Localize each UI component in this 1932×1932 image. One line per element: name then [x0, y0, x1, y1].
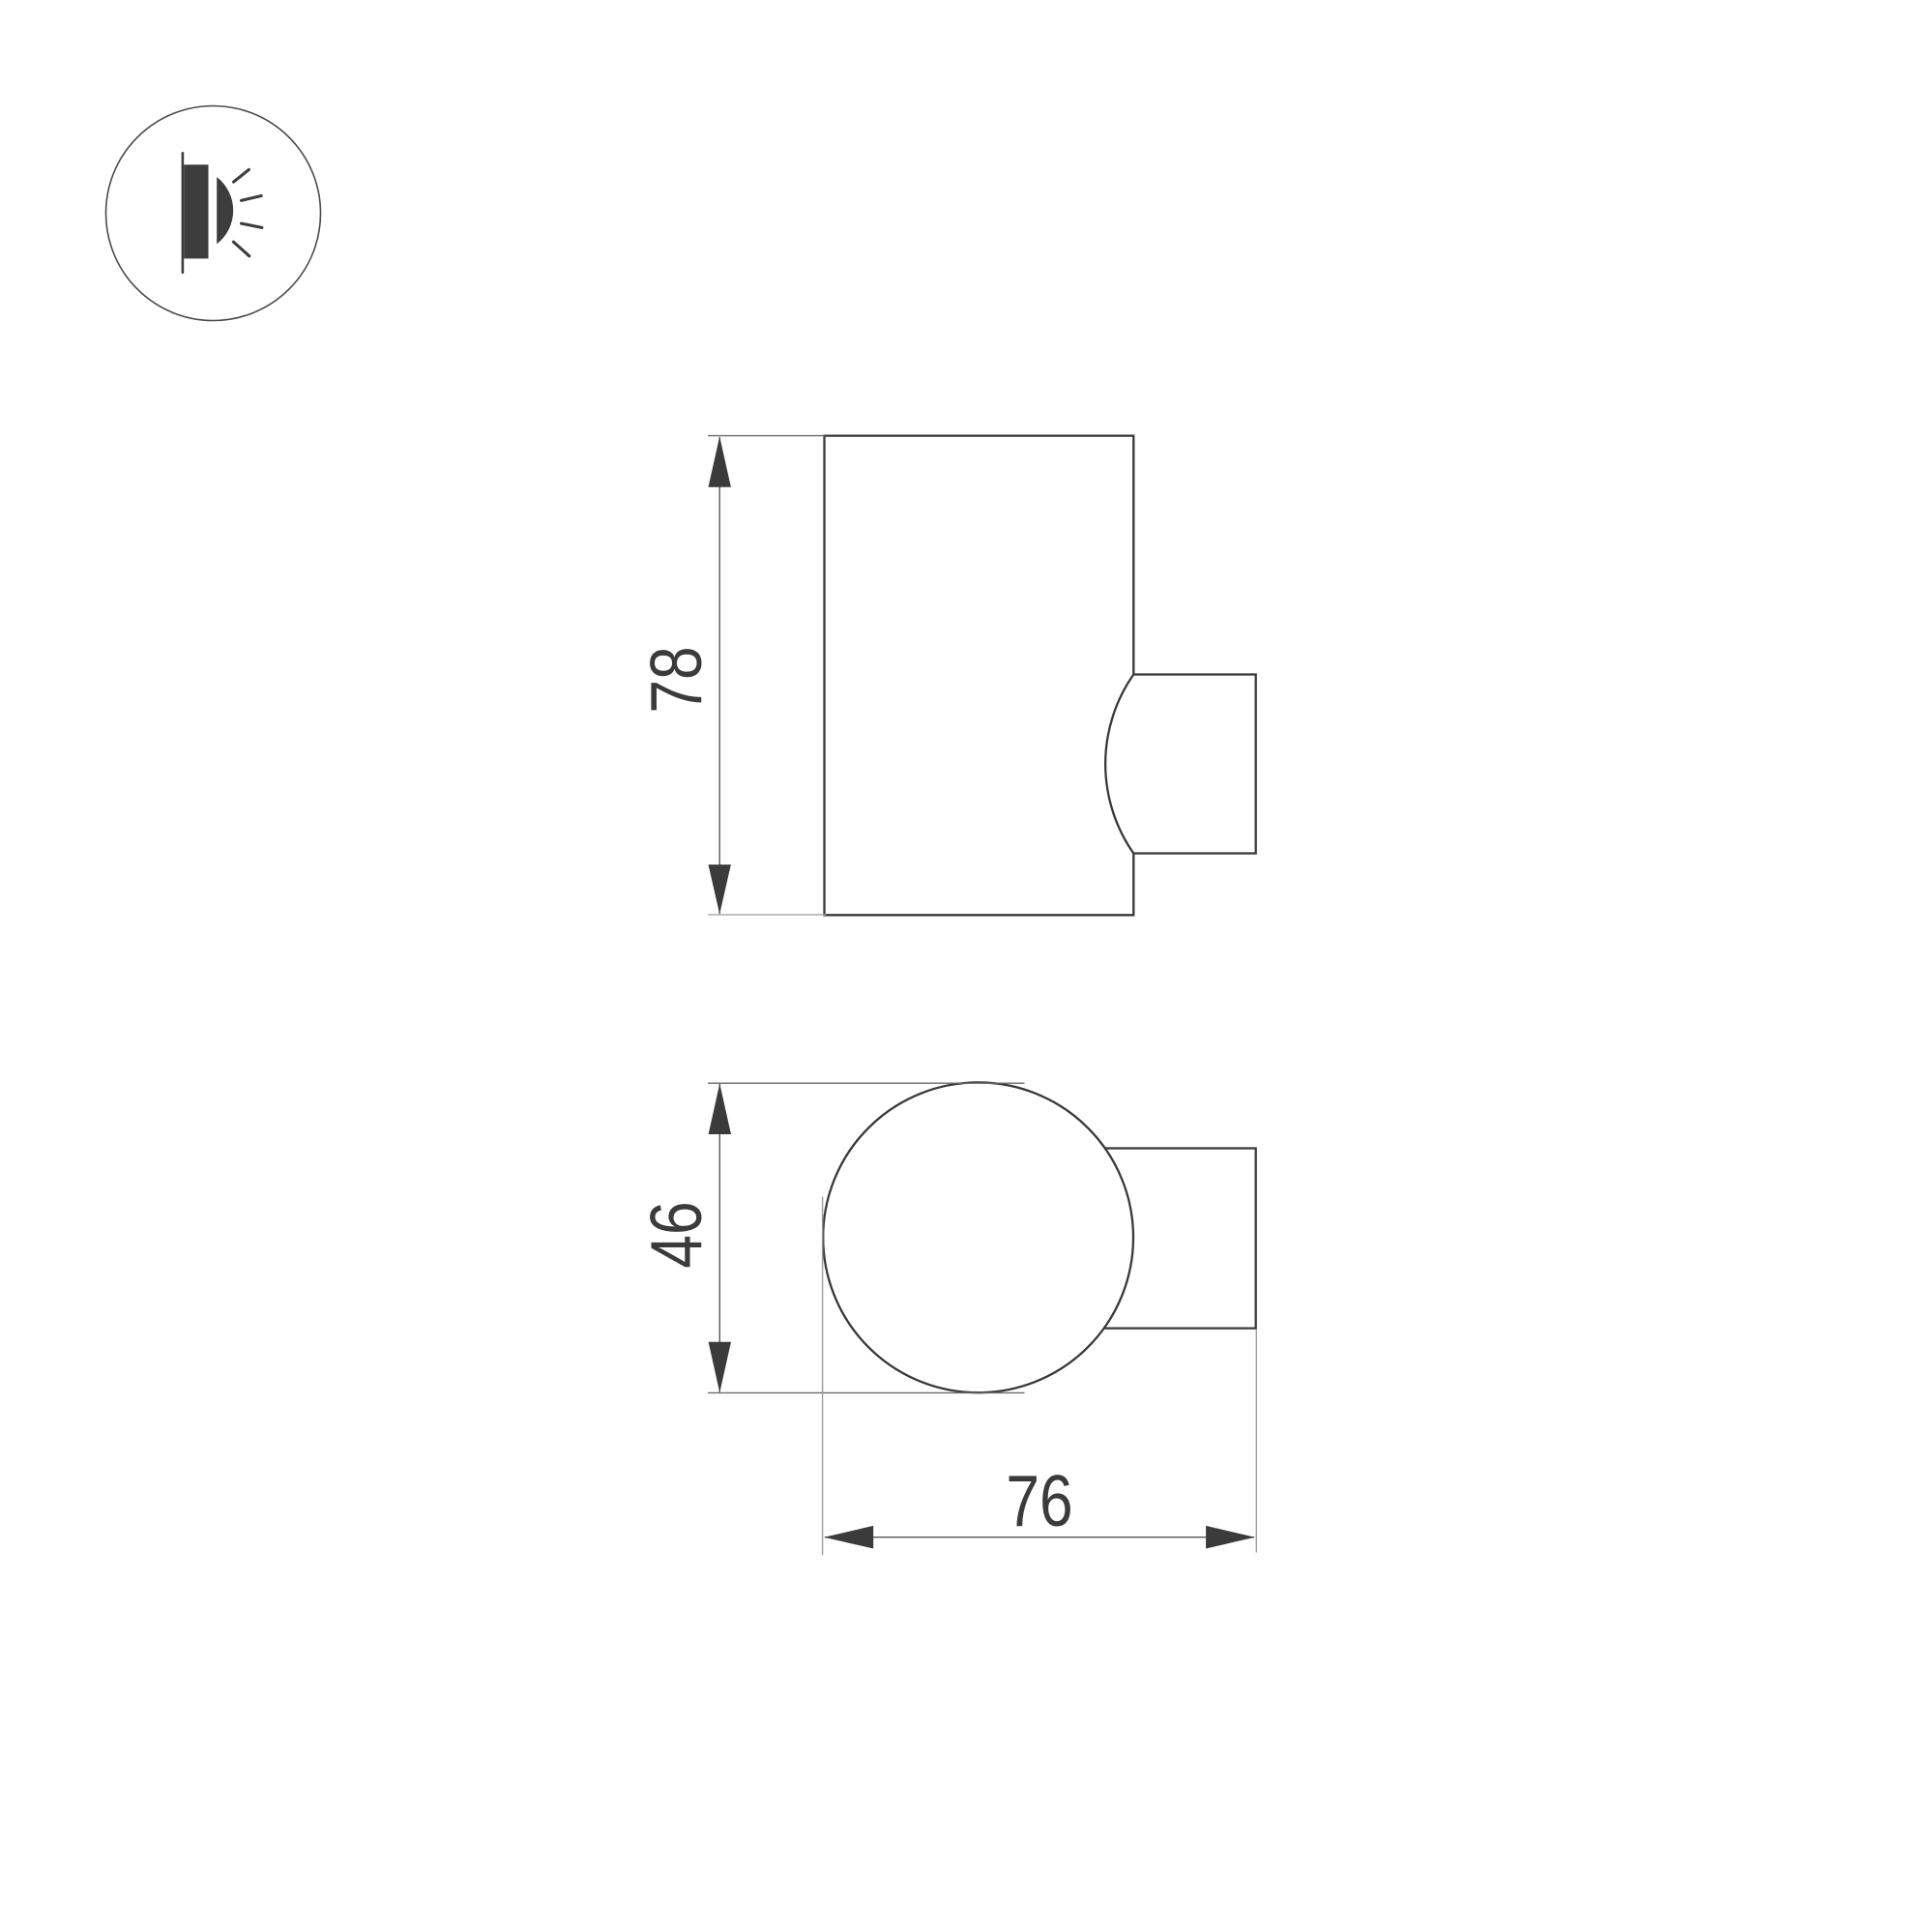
svg-text:78: 78	[635, 646, 717, 713]
svg-text:46: 46	[636, 1201, 717, 1268]
svg-text:76: 76	[1006, 1461, 1072, 1542]
